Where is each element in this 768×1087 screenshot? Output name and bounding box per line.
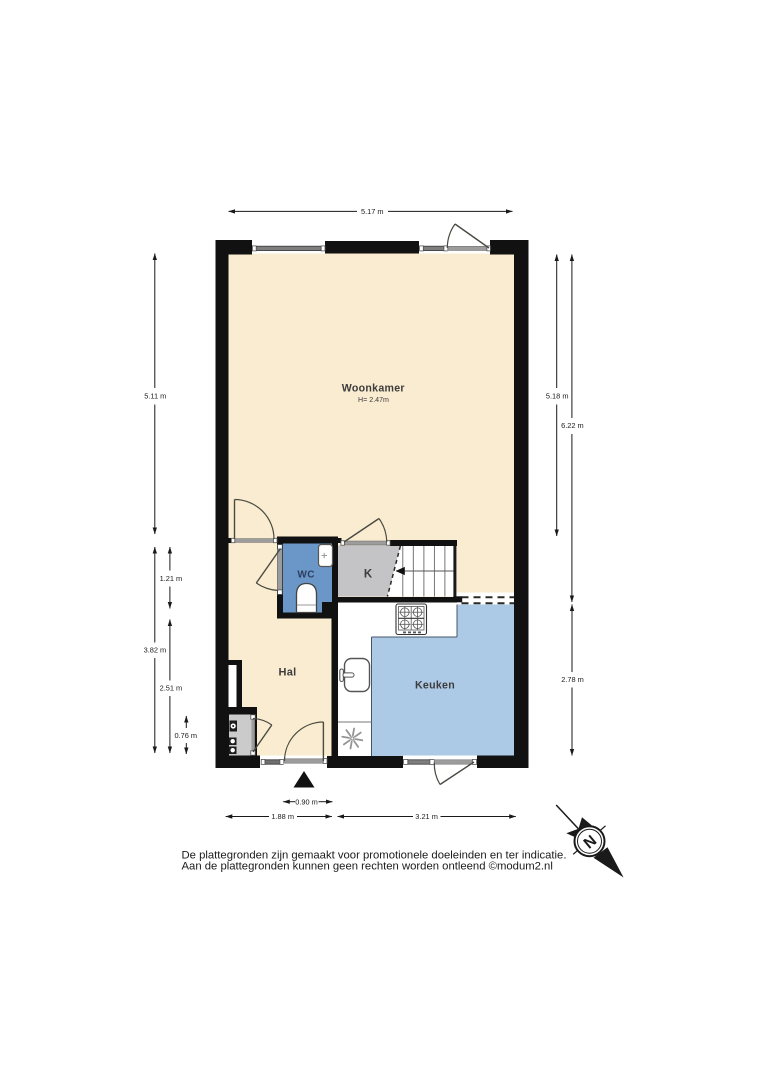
- svg-text:WC: WC: [297, 570, 315, 581]
- svg-text:2.51 m: 2.51 m: [160, 684, 183, 693]
- svg-text:3.82 m: 3.82 m: [144, 646, 167, 655]
- svg-text:5.18 m: 5.18 m: [546, 392, 569, 401]
- svg-text:1.21 m: 1.21 m: [160, 574, 183, 583]
- svg-text:Hal: Hal: [278, 667, 296, 679]
- svg-text:5.17 m: 5.17 m: [361, 207, 384, 216]
- svg-text:0.76 m: 0.76 m: [174, 731, 197, 740]
- svg-text:6.22 m: 6.22 m: [561, 421, 584, 430]
- svg-text:2.78 m: 2.78 m: [561, 675, 584, 684]
- svg-text:Aan de plattegronden kunnen ge: Aan de plattegronden kunnen geen rechten…: [182, 860, 553, 872]
- svg-text:1.88 m: 1.88 m: [271, 812, 294, 821]
- svg-text:Woonkamer: Woonkamer: [342, 383, 405, 395]
- svg-text:Keuken: Keuken: [415, 680, 455, 692]
- svg-text:3.21 m: 3.21 m: [415, 812, 438, 821]
- svg-text:K: K: [364, 569, 373, 581]
- svg-text:0.90 m: 0.90 m: [295, 797, 318, 806]
- svg-text:5.11 m: 5.11 m: [144, 392, 166, 401]
- svg-text:H= 2.47m: H= 2.47m: [358, 396, 389, 404]
